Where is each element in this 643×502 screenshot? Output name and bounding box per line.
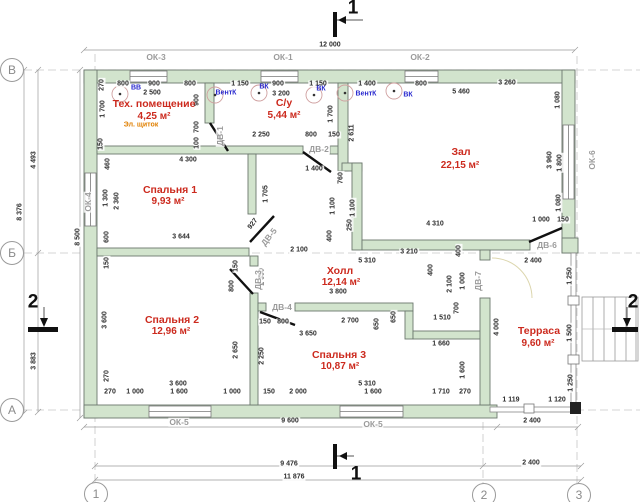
- floor-plan: 12 0008009008001 1509001 1501 4008003 26…: [0, 0, 643, 502]
- dim-label: 2 400: [521, 460, 541, 467]
- dim-label: 150: [104, 256, 111, 270]
- dim-label: 700: [454, 301, 461, 315]
- dim-label: 2 000: [288, 389, 308, 396]
- window-label: ОК-2: [409, 53, 430, 62]
- room-area-label: 4,25 м²: [138, 112, 171, 122]
- window-label: ОК-1: [272, 53, 293, 62]
- dim-label: 800: [304, 132, 318, 139]
- dim-label: 12 000: [318, 42, 341, 49]
- dim-label: 2 250: [251, 132, 271, 139]
- dim-label: 800: [414, 81, 428, 88]
- dim-label: 2 360: [114, 191, 121, 211]
- dim-label: 1 400: [357, 81, 377, 88]
- dim-label: 3 600: [168, 381, 188, 388]
- plan-svg: [0, 0, 643, 502]
- dim-label: 9 476: [279, 461, 299, 468]
- dim-label: 800: [229, 279, 236, 293]
- dim-label: 1 000: [531, 217, 551, 224]
- room-area-label: 10,87 м²: [321, 362, 360, 372]
- dim-label: 11 876: [282, 474, 305, 481]
- room-name-label: Спальня 2: [145, 315, 199, 326]
- dim-label: 400: [456, 244, 463, 258]
- dim-label: 1 600: [460, 360, 467, 380]
- dim-label: 800: [183, 81, 197, 88]
- room-name-label: Холл: [327, 266, 353, 277]
- dim-label: 2 700: [340, 318, 360, 325]
- vent-label: ВК: [259, 84, 268, 91]
- vent-label: ВВ: [131, 85, 141, 92]
- dim-label: 4 493: [31, 150, 38, 170]
- dim-label: 4 310: [425, 221, 445, 228]
- room-area-label: 5,44 м²: [268, 111, 301, 121]
- room-name-label: Спальня 3: [312, 350, 366, 361]
- vent-label: ВК: [316, 86, 325, 93]
- dim-label: 1 000: [460, 271, 467, 291]
- dim-label: 1 300: [103, 188, 110, 208]
- dim-label: 800: [116, 81, 130, 88]
- dim-label: 900: [271, 81, 285, 88]
- room-name-label: С/у: [276, 98, 292, 109]
- door-label: ДВ-7: [474, 270, 483, 292]
- dim-label: 3 210: [399, 249, 419, 256]
- dim-label: 2 250: [259, 346, 266, 366]
- dim-label: 270: [104, 369, 111, 383]
- dim-label: 2 100: [289, 247, 309, 254]
- dim-label: 400: [428, 263, 435, 277]
- dim-label: 2 500: [142, 90, 162, 97]
- room-area-label: 9,60 м²: [522, 339, 555, 349]
- dim-label: 5 460: [451, 89, 471, 96]
- dim-label: 2 100: [447, 274, 454, 294]
- dim-label: 3 800: [328, 289, 348, 296]
- dim-label: 150: [556, 217, 570, 224]
- door-label: ДВ-3: [254, 269, 263, 291]
- dim-label: 2 611: [349, 123, 356, 142]
- dim-label: 3 644: [171, 234, 191, 241]
- dim-label: 1 700: [100, 99, 107, 119]
- dim-label: 1 510: [432, 315, 452, 322]
- dim-label: 1 000: [125, 389, 145, 396]
- room-area-label: 12,14 м²: [322, 278, 361, 288]
- room-area-label: 12,96 м²: [152, 327, 191, 337]
- dim-label: 150: [327, 132, 341, 139]
- dim-label: 1 119: [501, 397, 520, 404]
- room-name-label: Тех. помещение: [113, 99, 196, 110]
- room-name-label: Спальня 1: [143, 185, 197, 196]
- dim-label: 1 250: [568, 373, 575, 393]
- dim-label: 150: [233, 259, 240, 273]
- dim-label: 3 960: [547, 150, 554, 170]
- dim-label: 4 300: [178, 157, 198, 164]
- section-number: 1: [351, 465, 362, 484]
- dim-label: 150: [258, 319, 272, 326]
- dim-label: 8 376: [17, 202, 24, 222]
- dim-label: 760: [338, 171, 345, 185]
- dim-label: 1 100: [350, 198, 357, 218]
- dim-label: 150: [98, 137, 105, 151]
- dim-label: 800: [276, 319, 290, 326]
- dim-label: 1 705: [263, 184, 270, 204]
- dim-label: 2 650: [233, 340, 240, 360]
- dim-label: 2 400: [522, 418, 542, 425]
- dim-label: 3 883: [31, 351, 38, 371]
- dim-label: 1 800: [557, 153, 564, 173]
- axis-marker: 1: [84, 482, 108, 502]
- dim-label: 1 600: [363, 389, 383, 396]
- axis-marker: А: [0, 398, 24, 422]
- dim-label: 1 100: [330, 196, 337, 216]
- section-number: 2: [628, 293, 639, 312]
- window-label: ОК-5: [362, 420, 383, 429]
- dim-label: 3 260: [497, 80, 517, 87]
- dim-label: 1 700: [328, 104, 335, 124]
- window-label: ОК-3: [145, 53, 166, 62]
- dim-label: 270: [103, 389, 117, 396]
- dim-label: 150: [262, 389, 276, 396]
- room-name-label: Зал: [451, 147, 470, 158]
- dim-label: 1 660: [431, 341, 451, 348]
- door-label: ДВ-4: [271, 303, 293, 312]
- section-number: 1: [348, 0, 359, 18]
- dim-label: 2 400: [523, 258, 543, 265]
- door-label: ДВ-6: [536, 241, 558, 250]
- vent-label: ВентК: [216, 90, 237, 97]
- dim-label: 270: [458, 389, 472, 396]
- axis-marker: В: [0, 58, 24, 82]
- door-label: ДВ-2: [308, 145, 330, 154]
- dim-label: 1 710: [431, 389, 451, 396]
- dim-label: 250: [347, 218, 354, 232]
- dim-label: 270: [99, 78, 106, 92]
- dim-label: 1 400: [304, 166, 324, 173]
- dim-label: 8 500: [75, 227, 82, 247]
- window-label: ОК-4: [84, 191, 93, 212]
- window-label: ОК-5: [168, 418, 189, 427]
- dim-label: 600: [104, 230, 111, 244]
- vent-label: ВК: [403, 92, 412, 99]
- electrical-label: Эл. щиток: [124, 122, 158, 129]
- dim-label: 5 310: [357, 381, 377, 388]
- axis-marker: Б: [0, 241, 24, 265]
- dim-label: 4 000: [494, 317, 501, 337]
- dim-label: 1 080: [556, 193, 563, 213]
- room-name-label: Терраса: [518, 326, 560, 337]
- door-label: ДВ-1: [216, 125, 225, 147]
- dim-label: 3 650: [298, 331, 318, 338]
- dim-label: 9 600: [280, 418, 300, 425]
- dim-label: 700: [194, 120, 201, 134]
- axis-marker: 3: [567, 483, 591, 502]
- dim-label: 1 000: [222, 389, 242, 396]
- dim-label: 400: [327, 229, 334, 243]
- dim-label: 3 600: [102, 310, 109, 330]
- dim-label: 460: [105, 157, 112, 171]
- dim-label: 1 120: [547, 397, 567, 404]
- dim-label: 1 500: [567, 323, 574, 343]
- section-number: 2: [28, 293, 39, 312]
- vent-label: ВентК: [356, 91, 377, 98]
- dim-label: 1 080: [555, 90, 562, 110]
- room-area-label: 9,93 м²: [152, 197, 185, 207]
- axis-marker: 2: [472, 483, 496, 502]
- dim-label: 1 600: [169, 389, 189, 396]
- dim-label: 100: [194, 136, 201, 150]
- dim-label: 650: [374, 317, 381, 331]
- dim-label: 900: [147, 81, 161, 88]
- window-label: ОК-6: [588, 149, 597, 170]
- dim-label: 5 310: [357, 258, 377, 265]
- dim-label: 650: [391, 310, 398, 324]
- room-area-label: 22,15 м²: [441, 161, 480, 171]
- dim-label: 1 250: [567, 266, 574, 286]
- dim-label: 1 150: [230, 81, 250, 88]
